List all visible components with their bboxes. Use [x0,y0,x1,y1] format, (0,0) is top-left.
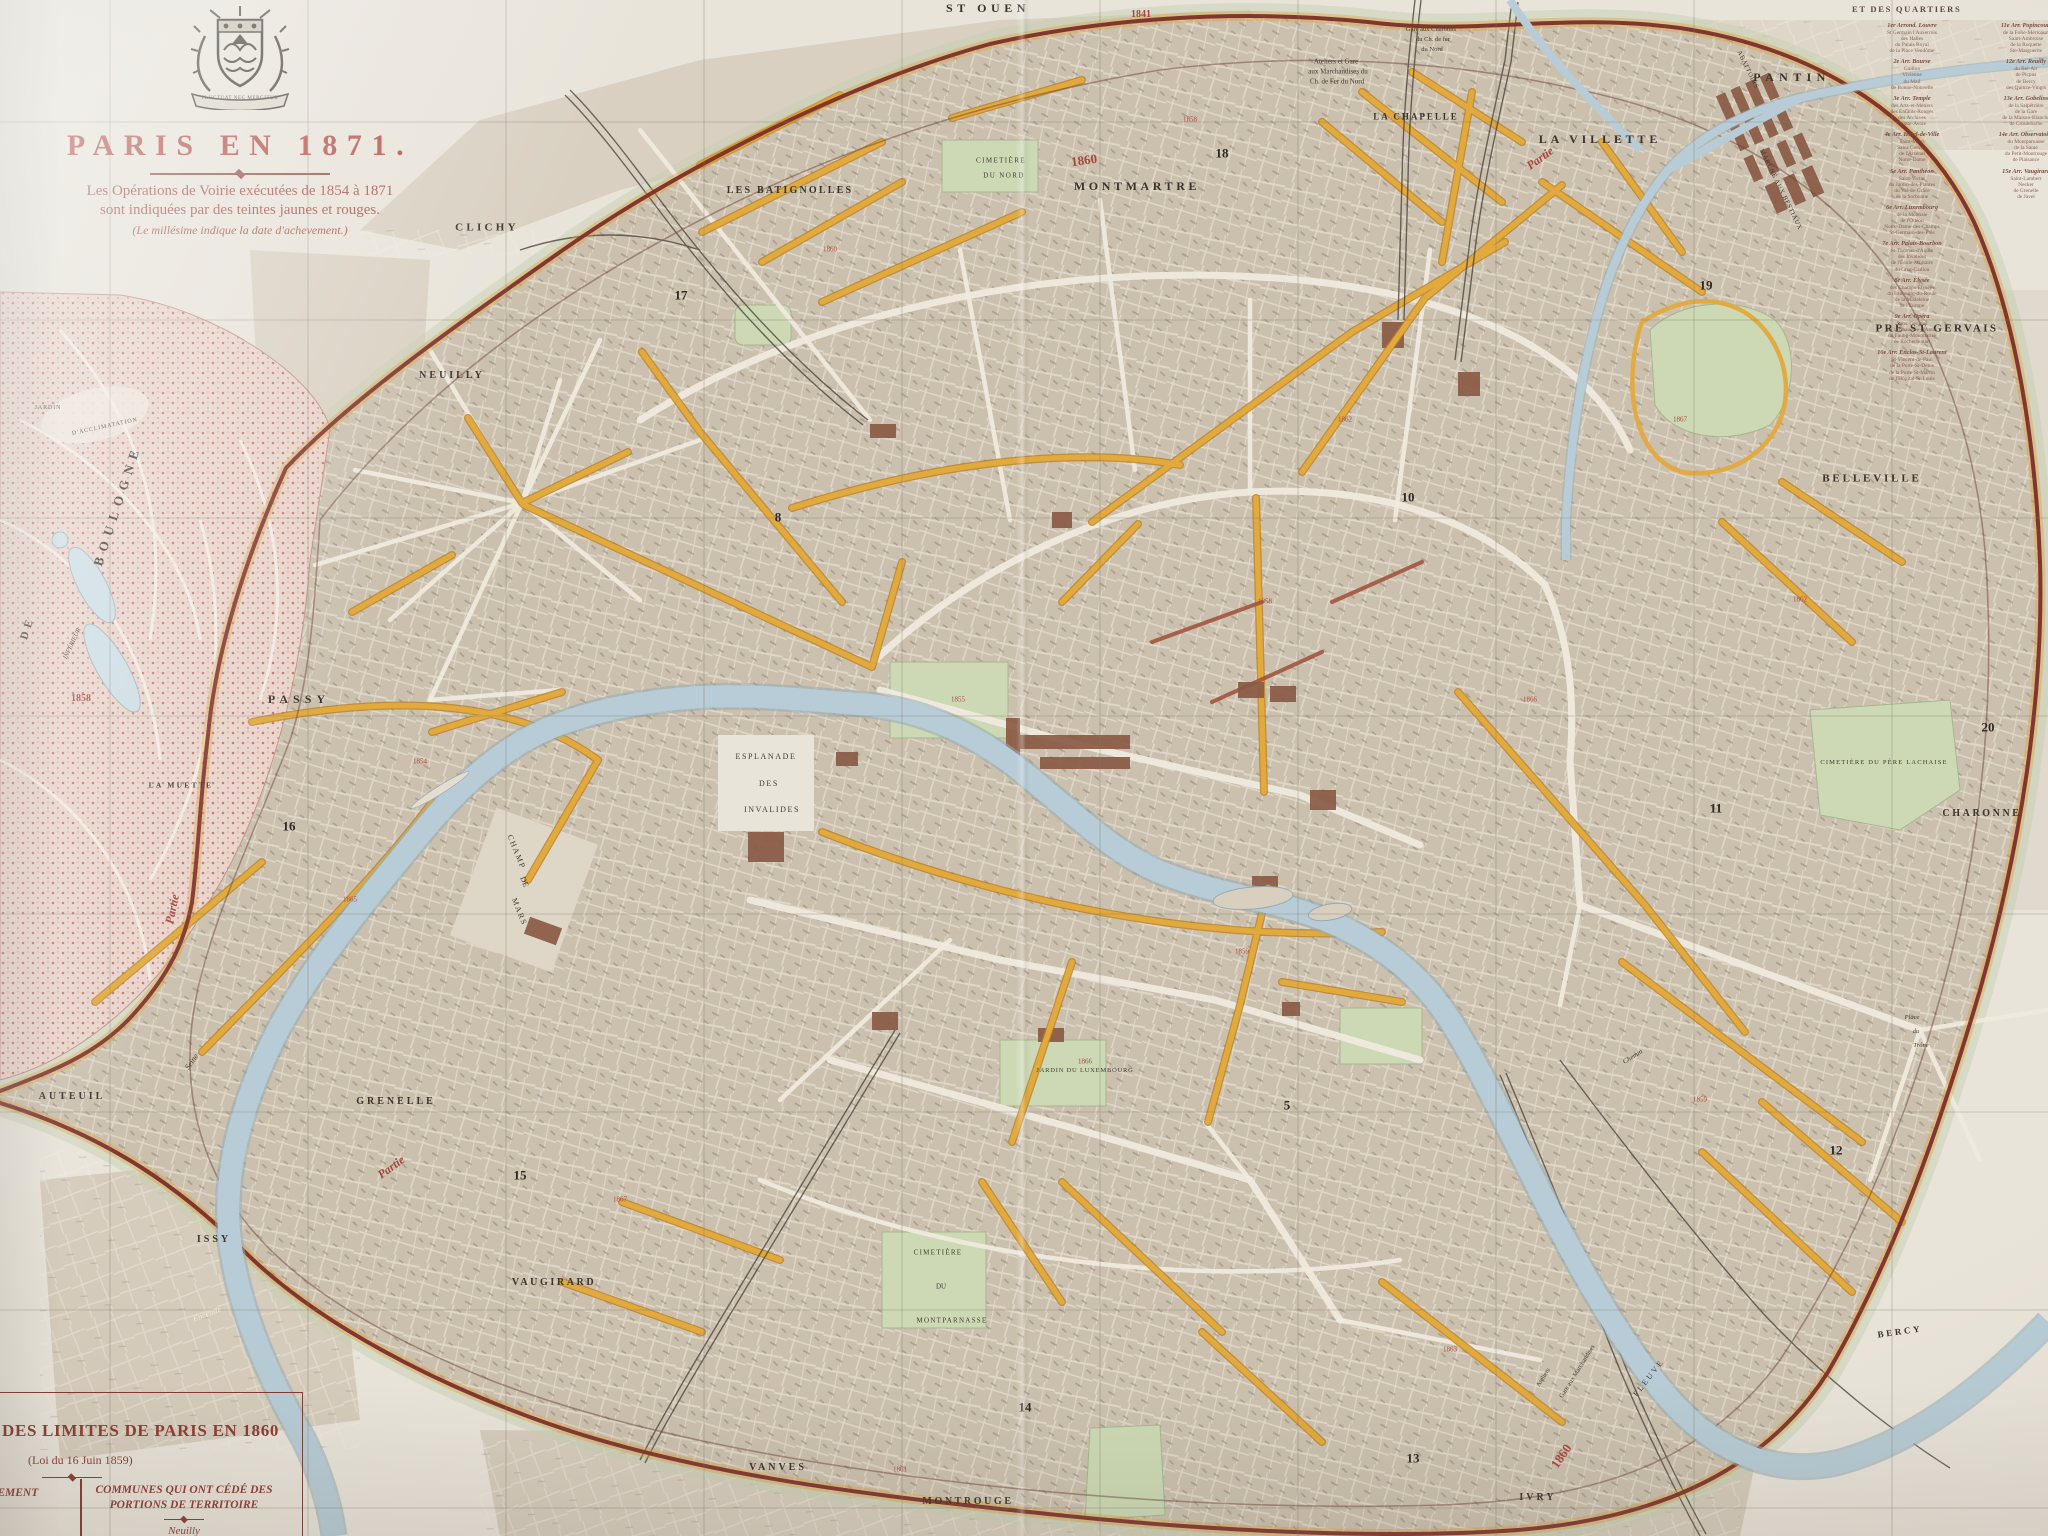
map-label-num: 12 [1830,1144,1843,1157]
quartier-item: du Gros-Caillou [1856,267,1968,273]
map-label-num: 5 [1284,1099,1291,1112]
map-label-yr: 1858 [1183,117,1197,124]
map-label-num: 13 [1407,1452,1420,1465]
limits-legend-box: DES LIMITES DE PARIS EN 1860 (Loi du 16 … [0,1392,303,1536]
title-subtitle-2: sont indiquées par des teintes jaunes et… [20,202,460,219]
map-label-place: PANTIN [1753,71,1831,83]
quartier-section-header: 10e Arr. Enclos-St-Laurent [1856,349,1968,356]
quartier-item: Sainte-Avoie [1856,121,1968,127]
map-label-place: AUTEUIL [39,1092,106,1102]
map-label-yr: 1862 [1793,597,1807,604]
map-sheet: ST OUENCLICHYLES BATIGNOLLESMONTMARTRELA… [0,0,2048,1536]
quartier-item: Notre-Dame [1856,157,1968,163]
map-label-yr: 1867 [1673,417,1687,424]
map-label-tiny: DU [936,1284,946,1291]
quartiers-legend-header: ET DES QUARTIERS [1852,4,2032,14]
map-label-num: 14 [1019,1401,1032,1414]
map-label-num: 18 [1216,147,1229,160]
map-label-num: 8 [775,511,782,524]
limits-col2-rule [164,1517,204,1522]
paris-coat-of-arms-icon [180,6,300,110]
limits-legend-title: DES LIMITES DE PARIS EN 1860 [2,1421,292,1441]
map-label-yr: 1866 [1523,697,1537,704]
quartier-item: St-Germain-des-Prés [1856,230,1968,236]
quartier-item: de l'Hôpital-St-Louis [1856,376,1968,382]
quartier-item: de Plaisance [1966,157,2048,163]
quartier-section-header: 4e Arr. Hôtel-de-Ville [1856,131,1968,138]
map-label-num: 19 [1700,279,1713,292]
map-label-place: CLICHY [455,223,519,234]
quartier-section-header: 13e Arr. Gobelins [1966,95,2048,102]
title-subtitle-3: (Le millésime indique la date d'acheveme… [20,223,460,238]
limits-commune-neuilly: Neuilly [84,1525,284,1536]
quartier-section-header: 12e Arr. Reuilly [1966,58,2048,65]
map-label-place: VAUGIRARD [512,1278,596,1288]
map-label-tiny: Ateliers et Gare [1314,59,1358,66]
map-label-tiny: MONTPARNASSE [917,1318,988,1325]
quartier-item: de la Sorbonne [1856,194,1968,200]
map-label-place: LA VILLETTE [1539,133,1661,145]
limits-col2: COMMUNES QUI ONT CÉDÉ DES PORTIONS DE TE… [84,1483,284,1536]
map-label-tiny: INVALIDES [744,806,800,814]
map-label-yr: 1867 [613,1197,627,1204]
map-label-num: 10 [1402,491,1415,504]
map-label-place: LA MUETTE [149,781,214,789]
map-label-place: ISSY [197,1235,231,1245]
map-label-yr: 1859 [1235,949,1249,956]
map-main-title: PARIS EN 1871. [20,129,460,163]
quartier-section-header: 1er Arrond. Louvre [1856,22,1968,29]
quartier-item: de Croulebarbe [1966,121,2048,127]
quartier-section-header: 9e Arr. Opéra [1856,313,1968,320]
map-label-num: 11 [1710,802,1722,815]
quartier-section-header: 8e Arr. Élysée [1856,277,1968,284]
map-label-yr: 1866 [1078,1059,1092,1066]
map-label-yr: 1862 [1338,417,1352,424]
limits-legend-divider [80,1479,82,1536]
map-label-yr: 1858 [1258,599,1272,606]
map-title-block: FLUCTUAT NEC MERGITUR PARIS EN 1871. Les… [20,0,460,238]
map-label-num: 16 [283,820,296,833]
map-label-place: MONTMARTRE [1074,180,1200,192]
map-label-tiny: ESPLANADE [735,753,796,761]
quartier-item: de Javel [1966,194,2048,200]
map-label-yr: 1860 [823,247,837,254]
limits-col1-fragment-1: ÈREMENT [0,1487,38,1499]
quartier-item: de Rochechouart [1856,339,1968,345]
map-label-yr: 1854 [413,759,427,766]
map-label-place: BELLEVILLE [1822,474,1922,485]
map-label-num: 15 [514,1169,527,1182]
quartier-item: de la Place Vendôme [1856,48,1968,54]
quartier-section-header: 2e Arr. Bourse [1856,58,1968,65]
map-label-place: LES BATIGNOLLES [727,186,853,196]
map-label-tiny: DU NORD [983,173,1025,180]
quartier-section-header: 3e Arr. Temple [1856,95,1968,102]
map-label-yr: 1855 [951,697,965,704]
map-label-tiny: CIMETIÈRE [976,158,1026,165]
quartier-section-header: 11e Arr. Popincourt [1966,22,2048,29]
quartier-section-header: 15e Arr. Vaugirard [1966,168,2048,175]
map-label-tiny: JARDIN [35,405,62,411]
map-label-place: NEUILLY [419,371,485,381]
map-label-yr: 1861 [893,1467,907,1474]
map-label-place: GRENELLE [356,1097,436,1107]
map-label-place: CHARONNE [1942,809,2021,819]
quartier-section-header: 7e Arr. Palais-Bourbon [1856,240,1968,247]
quartiers-legend-col2: 11e Arr. Popincourtde la Folie-Méricourt… [1966,18,2048,200]
map-label-red: 1841 [1131,10,1151,20]
quartier-item: des Quinze-Vingts [1966,85,2048,91]
limits-col2-line2: PORTIONS DE TERRITOIRE [84,1498,284,1513]
map-label-place: VANVES [749,1463,807,1473]
map-label-red: 1860 [1070,152,1098,168]
crest-motto: FLUCTUAT NEC MERGITUR [20,96,460,101]
map-label-place: LA CHAPELLE [1373,113,1459,122]
quartier-section-header: 5e Arr. Panthéon [1856,168,1968,175]
map-label-tiny-it: Trône [1913,1043,1928,1050]
quartier-section-header: 6e Arr. Luxembourg [1856,204,1968,211]
map-label-tiny: JARDIN DU LUXEMBOURG [1036,1068,1133,1075]
map-label-yr: 1859 [1693,1097,1707,1104]
limits-legend-rule [42,1475,102,1480]
map-label-tiny: Gare aux Charbons [1406,27,1456,34]
map-label-tiny: du Nord [1421,47,1442,54]
map-label-tiny-it: du [1913,1029,1920,1036]
title-subtitle-1: Les Opérations de Voirie exécutées de 18… [20,183,460,200]
map-label-tiny: CIMETIÈRE DU PÈRE LACHAISE [1820,760,1947,767]
limits-col2-line1: COMMUNES QUI ONT CÉDÉ DES [84,1483,284,1498]
map-label-place: PASSY [268,693,330,705]
map-label-place: IVRY [1519,1493,1556,1503]
map-label-place: MONTROUGE [922,1497,1013,1507]
limits-legend-law: (Loi du 16 Juin 1859) [28,1453,133,1468]
quartier-section-header: 14e Arr. Observatoire [1966,131,2048,138]
quartiers-legend-col1: 1er Arrond. LouvreSt Germain l'Auxerrois… [1856,18,1968,382]
map-label-tiny: du Ch. de fer [1416,37,1450,44]
map-label-num: 20 [1982,721,1995,734]
map-label-tiny: aux Marchandises du [1308,69,1367,76]
title-rule [150,171,330,177]
quartier-item: de l'Europe [1856,303,1968,309]
map-label-tiny: Ch. de Fer du Nord [1310,79,1364,86]
map-label-red: 1858 [71,694,91,704]
quartier-item: de Bonne-Nouvelle [1856,85,1968,91]
map-label-tiny: DES [759,780,779,788]
quartier-item: Ste-Marguerite [1966,48,2048,54]
map-label-num: 17 [675,289,688,302]
map-label-place: ST OUEN [946,2,1030,14]
map-label-yr: 1865 [343,897,357,904]
map-label-tiny-it: Place [1905,1015,1920,1022]
map-label-tiny: CIMETIÈRE [914,1250,963,1257]
map-label-yr: 1863 [1443,1347,1457,1354]
